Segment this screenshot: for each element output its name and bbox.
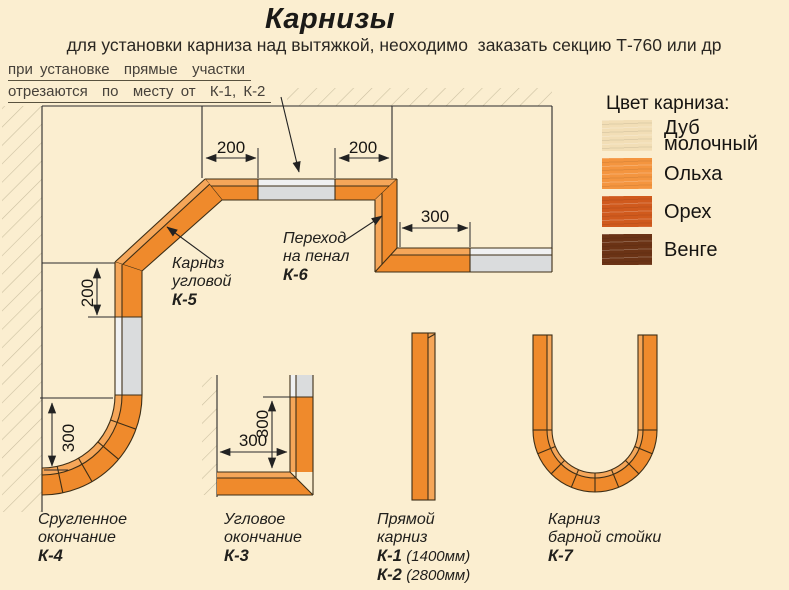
page-title: Карнизы: [265, 3, 395, 36]
callout-k5-code: К-5: [172, 291, 231, 309]
color-swatch-oak: [602, 120, 652, 151]
caption-k12-line: Прямой: [377, 511, 470, 529]
caption-k12-line: карниз: [377, 529, 470, 547]
legend-label-alder: Ольха: [664, 166, 722, 182]
callout-k5-line: угловой: [172, 273, 231, 291]
dim-label: 300: [253, 410, 272, 438]
caption-k4-code: К-4: [38, 547, 127, 565]
caption-k4-line: окончание: [38, 529, 127, 547]
caption-k4: Сругленное окончание К-4: [38, 511, 127, 565]
caption-k3-code: К-3: [224, 547, 302, 565]
caption-k7-code: К-7: [548, 547, 661, 565]
color-legend: Дуб молочный Ольха Орех Венге: [602, 120, 758, 272]
corner-transition-k6-shape: [375, 179, 552, 272]
caption-k3-line: Угловое: [224, 511, 302, 529]
legend-label-oak: Дуб молочный: [664, 120, 758, 152]
callout-k5: Карниз угловой К-5: [172, 255, 231, 309]
caption-k12-mm2: (2800мм): [406, 567, 470, 584]
note-line-1: при установке прямые участки: [8, 61, 251, 81]
caption-k7: Карниз барной стойки К-7: [548, 511, 661, 565]
caption-k12-mm1: (1400мм): [406, 548, 470, 565]
callout-k5-line: Карниз: [172, 255, 231, 273]
caption-k7-line: Карниз: [548, 511, 661, 529]
caption-k4-line: Сругленное: [38, 511, 127, 529]
page: 200 200 300 200 300 300 300 Карнизы для …: [0, 0, 789, 590]
dim-label: 300: [421, 207, 449, 226]
caption-k1-k2: Прямой карниз К-1 (1400мм) К-2 (2800мм): [377, 511, 470, 585]
installation-note: при установке прямые участки отрезаются …: [8, 61, 271, 105]
callout-k6: Переход на пенал К-6: [283, 230, 349, 284]
caption-k12-code2: К-2: [377, 566, 402, 584]
legend-label-wenge: Венге: [664, 242, 718, 258]
dim-label: 200: [217, 138, 245, 157]
callout-k6-code: К-6: [283, 266, 349, 284]
caption-k12-size-2: К-2 (2800мм): [377, 566, 470, 585]
color-swatch-walnut: [602, 196, 652, 227]
caption-k7-line: барной стойки: [548, 529, 661, 547]
caption-k12-size-1: К-1 (1400мм): [377, 547, 470, 566]
legend-title: Цвет карниза:: [606, 93, 729, 115]
caption-k3: Угловое окончание К-3: [224, 511, 302, 565]
legend-label-line: молочный: [664, 133, 758, 155]
cornice-top-run: [205, 179, 397, 200]
straight-cornice-bar: [412, 333, 435, 500]
callout-k6-line: на пенал: [283, 248, 349, 266]
callout-k6-line: Переход: [283, 230, 349, 248]
dim-label: 200: [349, 138, 377, 157]
caption-k3-line: окончание: [224, 529, 302, 547]
legend-label-walnut: Орех: [664, 204, 711, 220]
note-line-2: отрезаются по месту от К-1, К-2: [8, 83, 271, 103]
legend-item-oak: Дуб молочный: [602, 120, 758, 151]
page-subtitle: для установки карниза над вытяжкой, неох…: [67, 35, 722, 56]
dim-label: 200: [78, 279, 97, 307]
color-swatch-alder: [602, 158, 652, 189]
legend-item-alder: Ольха: [602, 158, 758, 189]
dim-label: 300: [59, 424, 78, 452]
legend-item-wenge: Венге: [602, 234, 758, 265]
legend-item-walnut: Орех: [602, 196, 758, 227]
color-swatch-wenge: [602, 234, 652, 265]
caption-k12-code1: К-1: [377, 547, 402, 565]
bar-counter-cornice-u: [533, 335, 657, 492]
